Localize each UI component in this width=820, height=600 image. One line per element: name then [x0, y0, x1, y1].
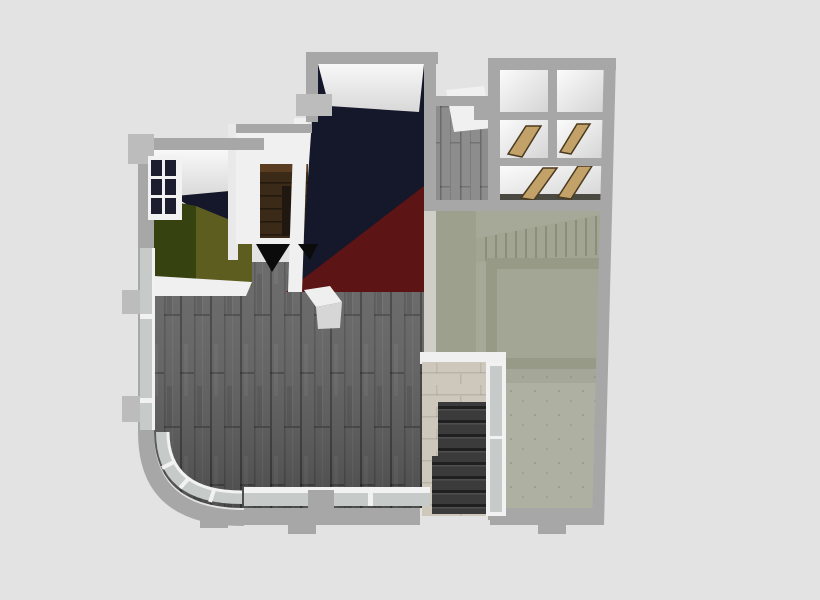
main-living-area	[154, 262, 430, 508]
floorplan-3d-render	[0, 0, 820, 600]
partition-frame-mid	[486, 436, 506, 439]
sage-inner-wall-h1	[486, 258, 604, 269]
window-pane-1	[151, 160, 162, 176]
window-pane-3	[151, 179, 162, 195]
bottom-glass-mullion-block	[308, 490, 334, 510]
pilaster-left-1	[122, 290, 140, 314]
wall-grid-h1	[494, 112, 606, 120]
wall-top-left	[136, 138, 264, 150]
pilaster-left-2	[122, 396, 140, 422]
left-glass-transom-2	[140, 398, 154, 403]
floorplan-viewport[interactable]	[0, 0, 820, 600]
wall-media-top	[306, 52, 438, 64]
bottom-glass-sill	[244, 487, 430, 493]
wall-grid-h2	[494, 158, 606, 166]
bottom-glass-frame-v	[368, 492, 373, 506]
closet-ladder	[282, 186, 291, 236]
left-glass-transom-1	[140, 314, 154, 319]
living-room-floor-shade	[154, 262, 430, 508]
wall-foot-curve	[200, 519, 228, 528]
basement-stairs-lower-steps	[432, 456, 486, 514]
bottom-glass-band	[244, 492, 430, 506]
sage-inner-room-shade	[497, 369, 596, 383]
wall-media-right	[424, 52, 436, 210]
sage-mid-area	[497, 269, 604, 362]
wall-closet-top	[236, 124, 312, 133]
wall-bottom-left	[244, 508, 420, 525]
bedroom-window	[148, 156, 182, 220]
wall-grid-left	[488, 58, 500, 210]
window-pane-4	[165, 179, 176, 195]
sage-left-column	[436, 211, 476, 362]
grid-cell-r1c1	[500, 70, 548, 112]
grid-cell-r1c2	[557, 70, 604, 112]
wall-hallway-top	[436, 96, 490, 106]
media-room-ceiling-slope	[318, 64, 424, 112]
wall-sage-top	[424, 200, 606, 211]
window-pane-2	[165, 160, 176, 176]
window-pane-5	[151, 198, 162, 214]
sage-inner-room-texture	[497, 369, 596, 515]
wall-foot-2	[538, 525, 566, 534]
sage-left-white-wall	[424, 211, 436, 362]
window-pane-6	[165, 198, 176, 214]
partition-frame-top	[486, 362, 506, 366]
wall-foot-1	[288, 525, 316, 534]
wall-bottom-right	[490, 508, 604, 525]
pilaster-media-cross	[296, 94, 332, 116]
partition-frame-bottom	[486, 512, 506, 516]
